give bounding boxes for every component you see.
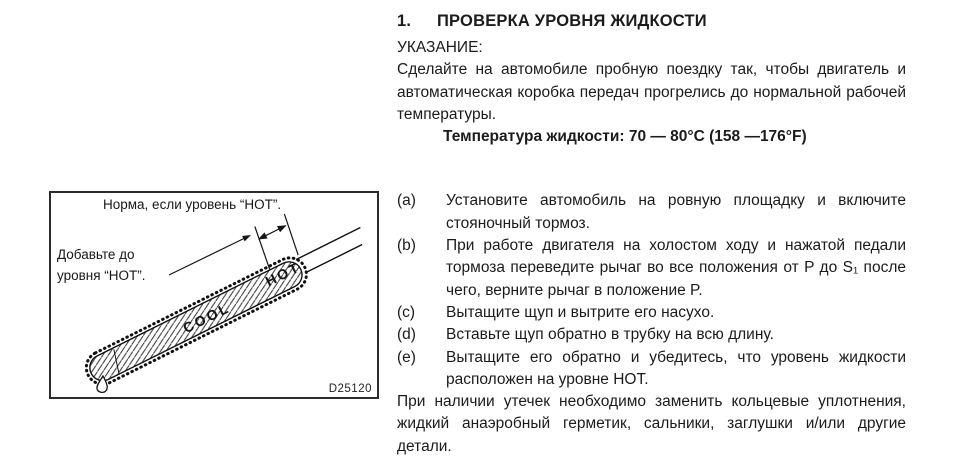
step-d: (d) Вставьте щуп обратно в трубку на всю… (397, 324, 906, 346)
procedure-column: 1. ПРОВЕРКА УРОВНЯ ЖИДКОСТИ УКАЗАНИЕ: Сд… (397, 8, 906, 458)
shaft-lower-line (307, 245, 362, 273)
dimension-arrows (256, 222, 288, 242)
step-a-text: Установите автомобиль на ровную площадку… (446, 190, 906, 235)
dipstick-group: COOL HOT (62, 193, 372, 390)
fluid-temperature-line: Температура жидкости: 70 — 80°C (158 —17… (443, 126, 906, 148)
procedure-steps: (a) Установите автомобиль на ровную площ… (397, 190, 906, 391)
step-d-text: Вставьте щуп обратно в трубку на всю дли… (446, 324, 906, 346)
caption-add-line1: Добавьте до (57, 244, 146, 265)
step-e-marker: (e) (397, 347, 446, 392)
step-c-text: Вытащите щуп и вытрите его насухо. (446, 302, 906, 324)
step-d-marker: (d) (397, 324, 446, 346)
dipstick-figure-box: COOL HOT Норма, если уровень “HOT”. (49, 191, 379, 399)
step-b: (b) При работе двигателя на холостом ход… (397, 235, 906, 302)
section-number: 1. (397, 8, 437, 34)
step-e: (e) Вытащите его обратно и убедитесь, чт… (397, 347, 906, 392)
leader-line (169, 235, 251, 275)
section-title: ПРОВЕРКА УРОВНЯ ЖИДКОСТИ (437, 8, 707, 34)
step-a-marker: (a) (397, 190, 446, 235)
step-e-text: Вытащите его обратно и убедитесь, что ур… (446, 347, 906, 392)
step-b-text: При работе двигателя на холостом ходу и … (446, 235, 906, 302)
step-c-marker: (c) (397, 302, 446, 324)
step-b-marker: (b) (397, 235, 446, 302)
manual-page: COOL HOT Норма, если уровень “HOT”. (0, 0, 960, 464)
note-body: Сделайте на автомобиле пробную поездку т… (397, 59, 906, 126)
caption-add-line2: уровня “HOT”. (57, 265, 146, 286)
shaft-upper-line (296, 228, 360, 260)
dimension-tick-right (279, 214, 304, 255)
caption-add-to-hot: Добавьте до уровня “HOT”. (57, 244, 146, 286)
leak-note-paragraph: При наличии утечек необходимо заменить к… (397, 391, 906, 458)
caption-norm-level: Норма, если уровень “HOT”. (103, 197, 281, 212)
figure-id: D25120 (329, 383, 372, 395)
note-label: УКАЗАНИЕ: (397, 37, 906, 59)
dipstick-diagram: COOL HOT (51, 193, 377, 397)
section-heading: 1. ПРОВЕРКА УРОВНЯ ЖИДКОСТИ (397, 8, 906, 34)
step-c: (c) Вытащите щуп и вытрите его насухо. (397, 302, 906, 324)
step-a: (a) Установите автомобиль на ровную площ… (397, 190, 906, 235)
